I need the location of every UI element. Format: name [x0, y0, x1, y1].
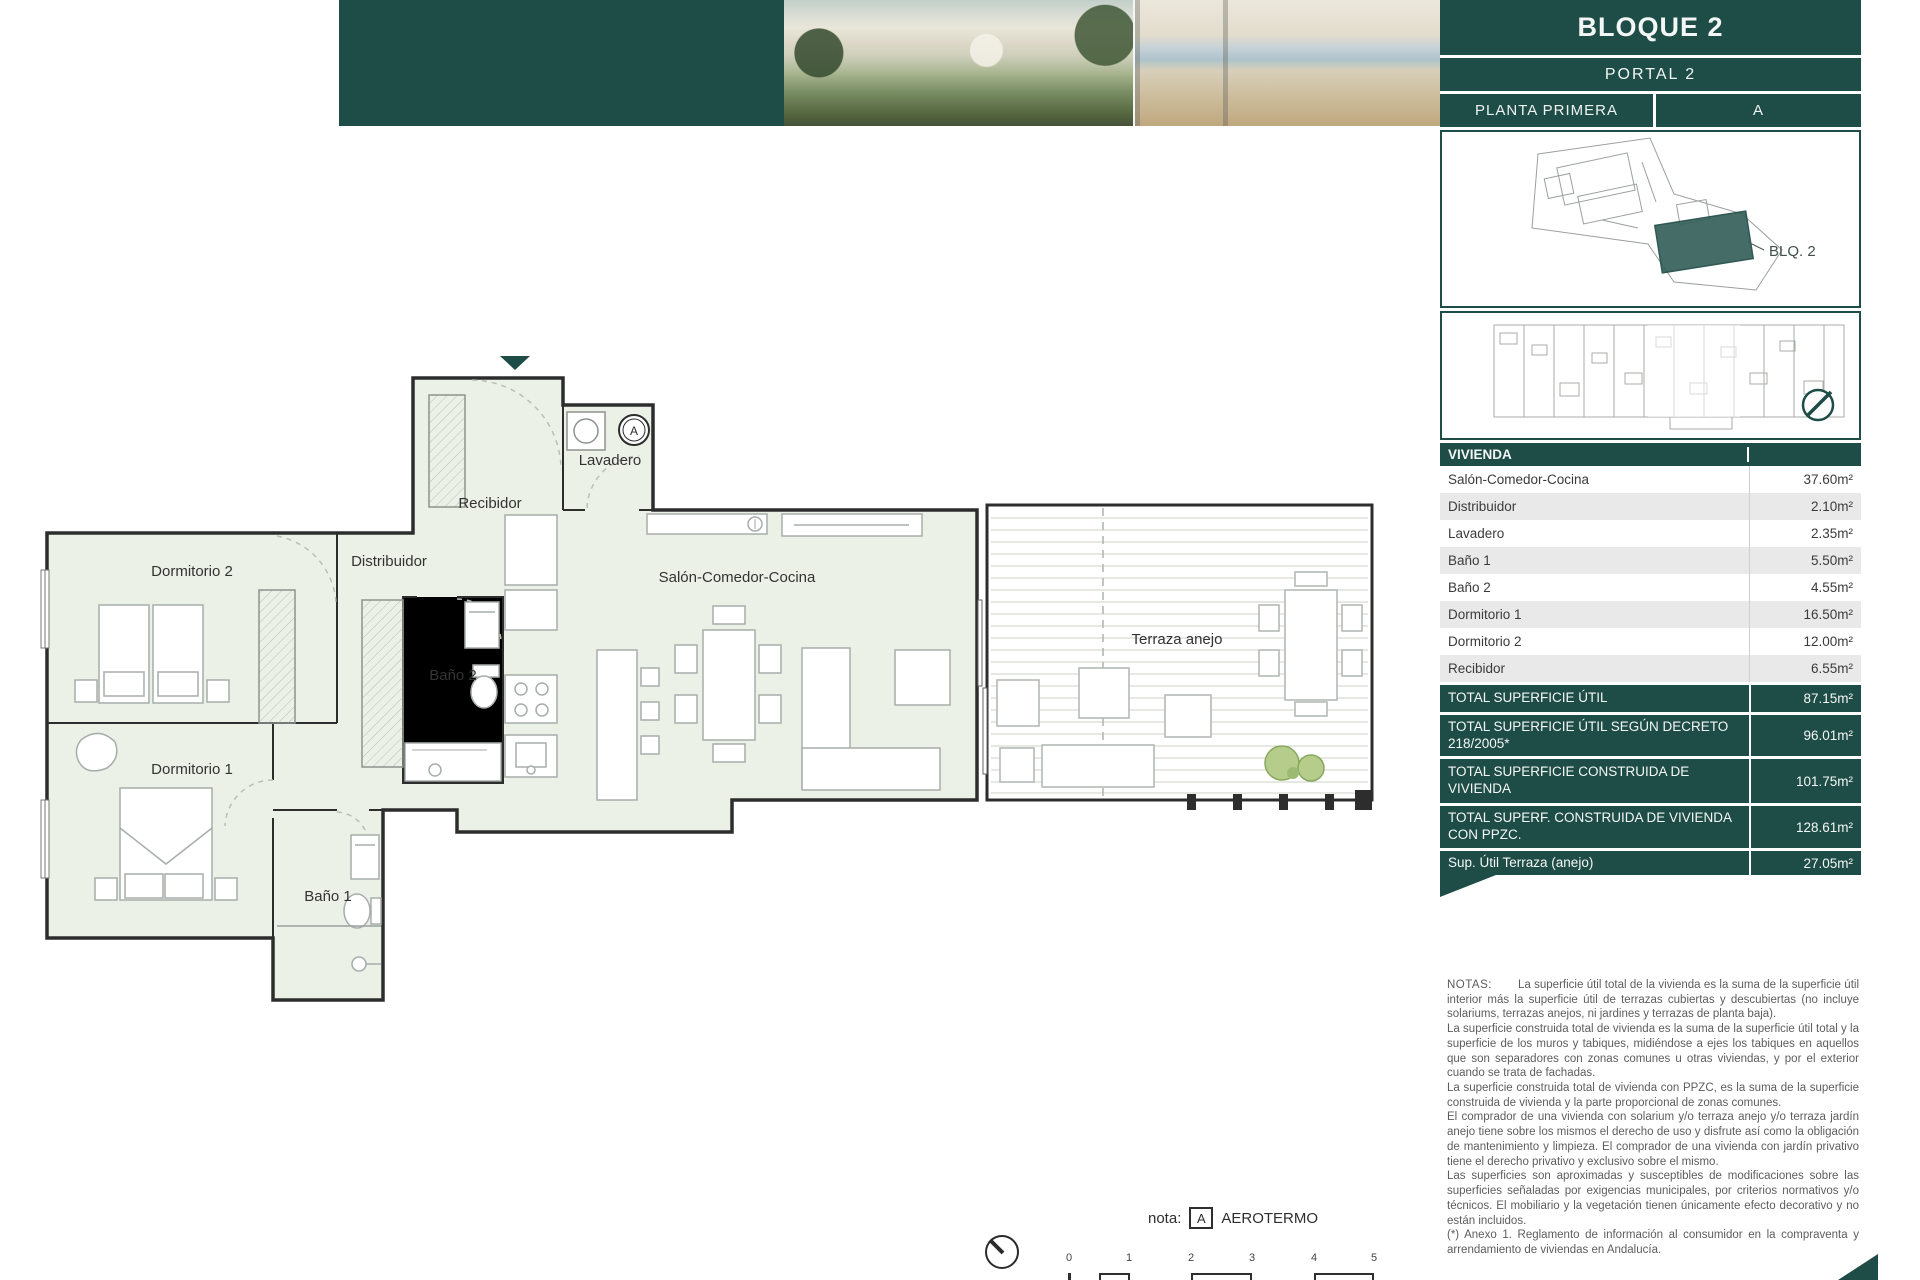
north-compass-icon	[981, 1231, 1023, 1273]
notes-heading: NOTAS:	[1447, 979, 1492, 991]
scale-bar: 0 1 2 3 4 5	[1060, 1252, 1390, 1280]
total-row: TOTAL SUPERFICIE ÚTIL87.15m²	[1440, 685, 1861, 712]
top-banner	[339, 0, 1440, 126]
nota-label: nota:	[1148, 1210, 1181, 1227]
aerotermo-text: AEROTERMO	[1221, 1210, 1318, 1227]
table-header-row: VIVIENDA	[1440, 443, 1861, 466]
unit-label: A	[1656, 94, 1861, 127]
floor-strip-drawing	[1442, 313, 1859, 438]
floor-unit-row: PLANTA PRIMERA A	[1440, 94, 1861, 127]
room-label-dormitorio2: Dormitorio 2	[151, 563, 233, 580]
photo-exterior-garden	[784, 0, 1133, 126]
room-label-terraza: Terraza anejo	[1132, 631, 1223, 648]
floor-label: PLANTA PRIMERA	[1440, 94, 1653, 127]
aerotermo-note: nota: A AEROTERMO	[1148, 1207, 1318, 1229]
portal-label: PORTAL 2	[1440, 58, 1861, 91]
site-plan-drawing: BLQ. 2	[1442, 132, 1859, 306]
svg-text:A: A	[630, 424, 638, 438]
aerotermo-box-icon: A	[1189, 1207, 1213, 1229]
floor-strip-box	[1440, 311, 1861, 440]
table-row: Recibidor6.55m²	[1440, 655, 1861, 682]
table-row: Baño 24.55m²	[1440, 574, 1861, 601]
block-title: BLOQUE 2	[1440, 0, 1861, 55]
blq-2-label: BLQ. 2	[1769, 243, 1816, 260]
compass-icon	[1803, 390, 1833, 420]
table-row: Lavadero2.35m²	[1440, 520, 1861, 547]
panel-bottom-wedge	[1440, 875, 1496, 897]
floor-plan-svg: A	[37, 350, 1407, 1030]
aerotermo-icon: A	[619, 415, 649, 445]
room-label-bano1: Baño 1	[304, 888, 352, 905]
table-row: Distribuidor2.10m²	[1440, 493, 1861, 520]
area-table: VIVIENDA Salón-Comedor-Cocina37.60m² Dis…	[1440, 443, 1861, 875]
room-label-dormitorio1: Dormitorio 1	[151, 761, 233, 778]
notes-block: NOTAS:La superficie útil total de la viv…	[1447, 978, 1859, 1258]
floor-plan: A	[37, 350, 1407, 1035]
room-label-distribuidor: Distribuidor	[351, 553, 427, 570]
entrance-arrow-icon	[500, 356, 530, 370]
highlighted-block	[1655, 211, 1764, 273]
total-row: TOTAL SUPERFICIE ÚTIL SEGÚN DECRETO 218/…	[1440, 715, 1861, 756]
total-row: TOTAL SUPERFICIE CONSTRUIDA DE VIVIENDA1…	[1440, 759, 1861, 803]
total-row: Sup. Útil Terraza (anejo)27.05m²	[1440, 851, 1861, 875]
table-row: Baño 15.50m²	[1440, 547, 1861, 574]
table-row: Salón-Comedor-Cocina37.60m²	[1440, 466, 1861, 493]
room-label-recibidor: Recibidor	[458, 495, 521, 512]
room-label-bano2: Baño 2	[429, 667, 477, 684]
photo-interior-terrace	[1133, 0, 1442, 126]
table-header: VIVIENDA	[1440, 447, 1749, 462]
room-label-salon: Salón-Comedor-Cocina	[659, 569, 816, 586]
table-row: Dormitorio 212.00m²	[1440, 628, 1861, 655]
total-row: TOTAL SUPERF. CONSTRUIDA DE VIVIENDA CON…	[1440, 806, 1861, 848]
room-label-lavadero: Lavadero	[579, 452, 642, 469]
washer-icon	[567, 412, 605, 450]
site-plan-box: BLQ. 2	[1440, 130, 1861, 308]
table-row: Dormitorio 116.50m²	[1440, 601, 1861, 628]
plan-sheet: BLOQUE 2 PORTAL 2 PLANTA PRIMERA A	[0, 0, 1920, 1280]
